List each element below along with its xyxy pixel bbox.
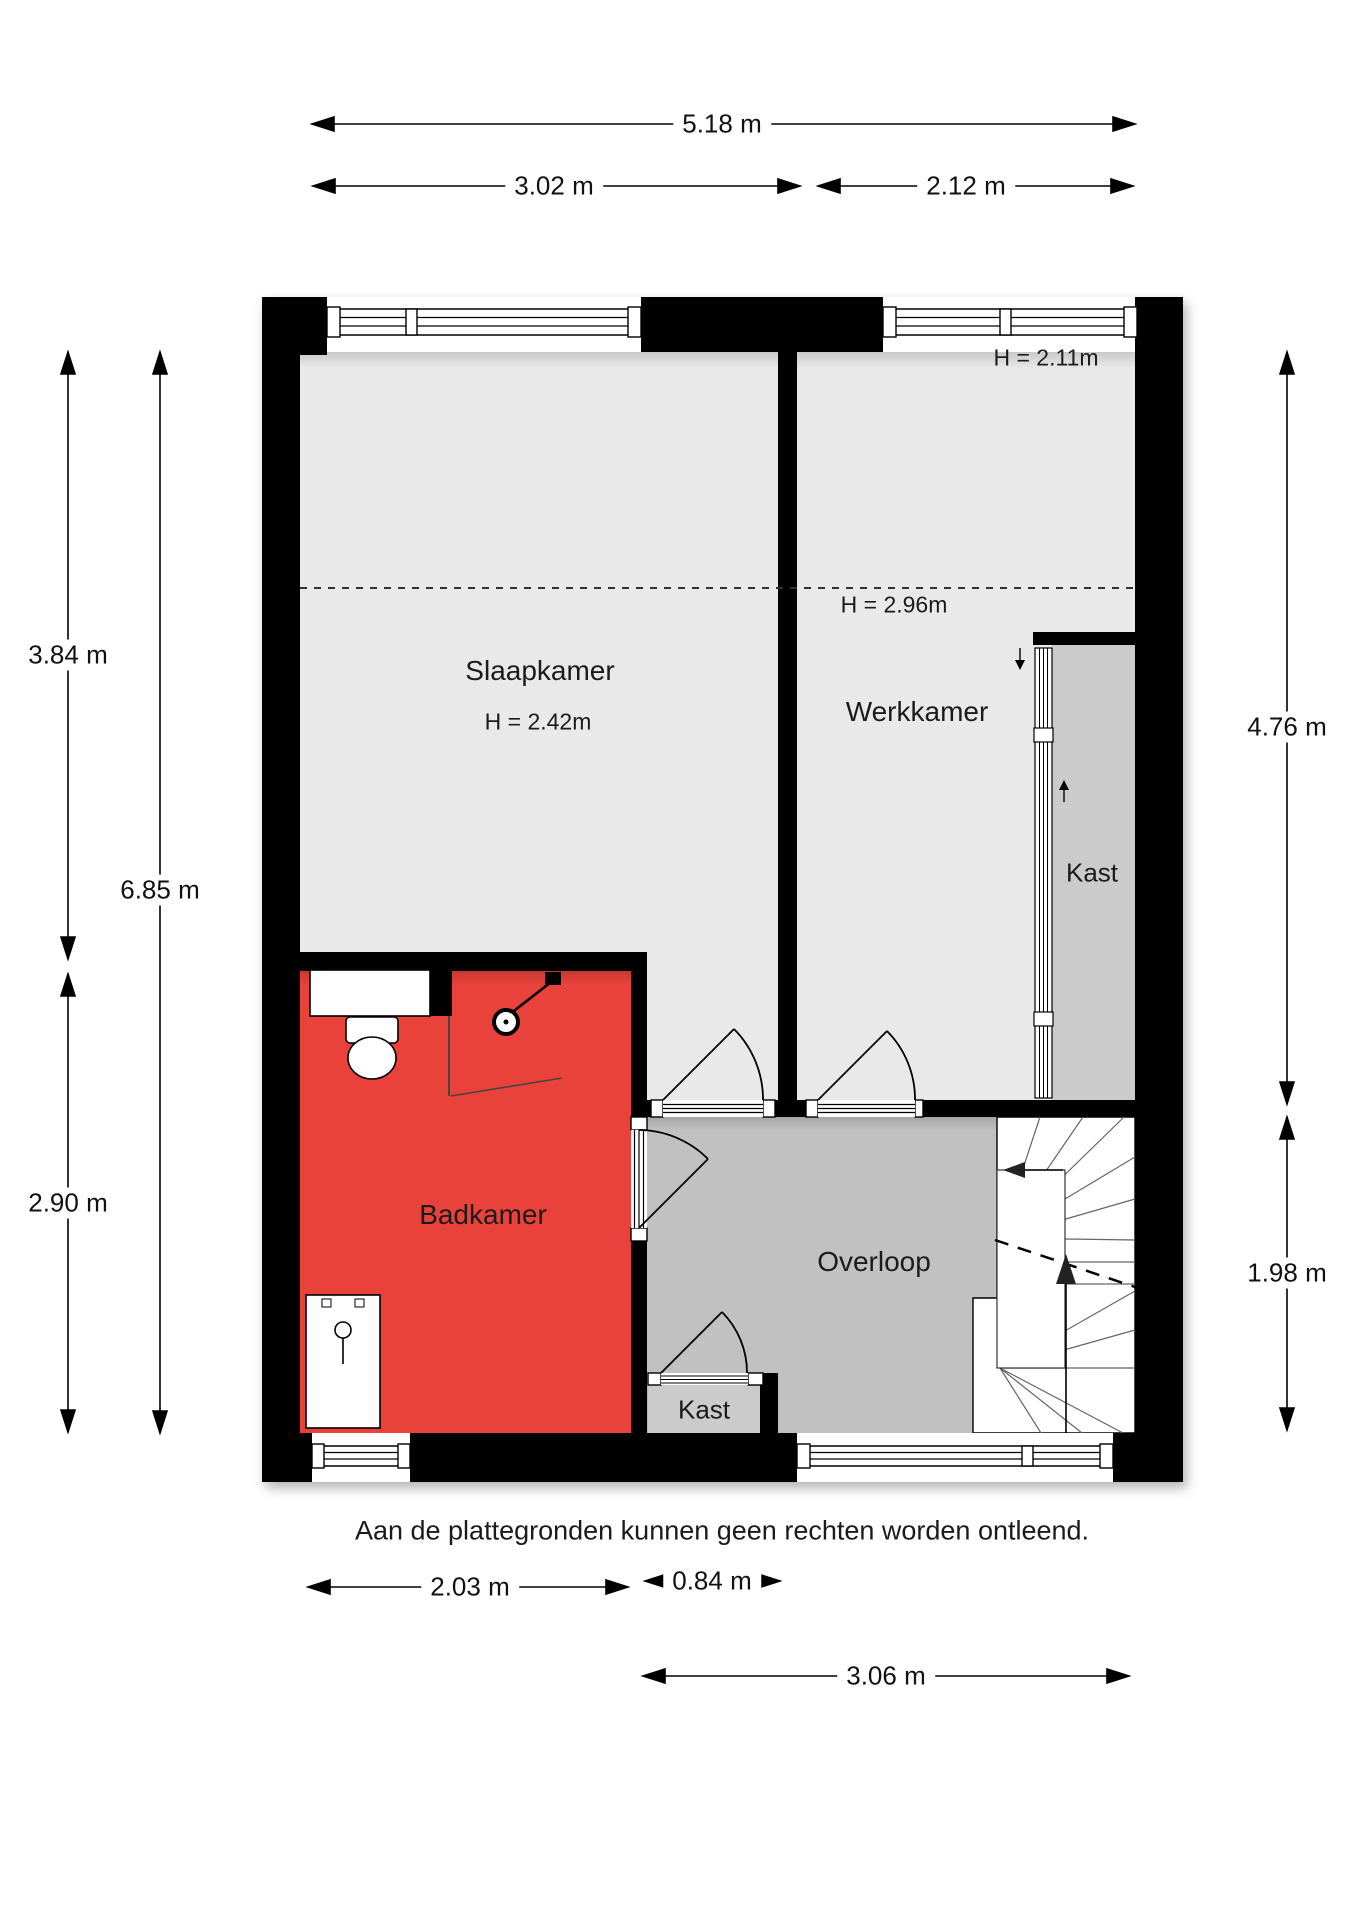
dimension-bottom-kast: 0.84 m (663, 1566, 761, 1597)
toilet (346, 1017, 398, 1079)
dimension-width-right: 2.12 m (917, 171, 1015, 202)
dimension-right-lower: 1.98 m (1238, 1258, 1336, 1289)
dimension-left-upper: 3.84 m (19, 640, 117, 671)
room-label-overloop: Overloop (817, 1246, 931, 1278)
dimension-left-lower: 2.90 m (19, 1188, 117, 1219)
dimension-left-total: 6.85 m (111, 875, 209, 906)
bottom-window-right (797, 1433, 1113, 1482)
dimension-right-upper: 4.76 m (1238, 712, 1336, 743)
dimension-bottom-right: 3.06 m (837, 1661, 935, 1692)
dimension-width-left: 3.02 m (505, 171, 603, 202)
wall-stub (430, 970, 452, 1016)
dimension-bottom-badkamer: 2.03 m (421, 1572, 519, 1603)
stairs (973, 1117, 1135, 1433)
stair-newel (997, 1170, 1065, 1368)
washbasin-unit (306, 1295, 380, 1428)
room-label-slaapkamer: Slaapkamer (465, 655, 614, 687)
dimension-width-total: 5.18 m (673, 109, 771, 140)
top-window-left (327, 297, 641, 352)
room-label-kast-right: Kast (1066, 858, 1118, 889)
height-label-slaapkamer: H = 2.42m (485, 709, 592, 736)
floorplan-drawing (0, 0, 1358, 1920)
vanity (310, 970, 430, 1016)
room-label-badkamer: Badkamer (419, 1199, 547, 1231)
room-label-werkkamer: Werkkamer (846, 696, 989, 728)
shade-overloop (647, 1117, 997, 1131)
bathroom-top-wall (300, 952, 647, 971)
disclaimer-text: Aan de plattegronden kunnen geen rechten… (355, 1516, 1089, 1547)
floorplan-canvas: Slaapkamer H = 2.42m Werkkamer H = 2.96m… (0, 0, 1358, 1920)
height-label-werkkamer: H = 2.96m (841, 592, 948, 619)
room-label-kast-bottom: Kast (678, 1395, 730, 1426)
bottom-window-left (312, 1433, 410, 1482)
kast-right-wall (1033, 632, 1135, 645)
height-label-top-right: H = 2.11m (993, 345, 1098, 372)
divider-wall (778, 352, 797, 1100)
